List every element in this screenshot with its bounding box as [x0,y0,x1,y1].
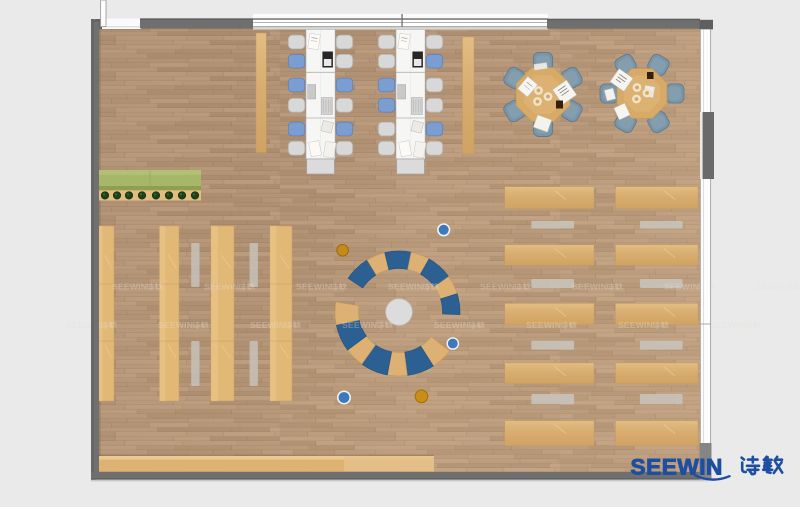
svg-text:SEEWIN: SEEWIN [480,282,515,292]
svg-text:SEEWIN: SEEWIN [434,320,469,330]
svg-text:SEEWIN: SEEWIN [572,282,607,292]
svg-text:SEEWIN: SEEWIN [664,282,699,292]
svg-text:SEEWIN: SEEWIN [526,320,561,330]
svg-text:SEEWIN: SEEWIN [618,320,653,330]
svg-text:SEEWIN: SEEWIN [204,282,239,292]
svg-text:SEEWIN: SEEWIN [631,455,723,480]
svg-text:SEEWIN: SEEWIN [112,282,147,292]
svg-text:SEEWIN: SEEWIN [756,282,791,292]
svg-text:SEEWIN: SEEWIN [342,320,377,330]
svg-text:SEEWIN: SEEWIN [388,282,423,292]
svg-text:SEEWIN: SEEWIN [296,282,331,292]
svg-text:SEEWIN: SEEWIN [710,320,745,330]
svg-text:SEEWIN: SEEWIN [158,320,193,330]
svg-text:SEEWIN: SEEWIN [250,320,285,330]
